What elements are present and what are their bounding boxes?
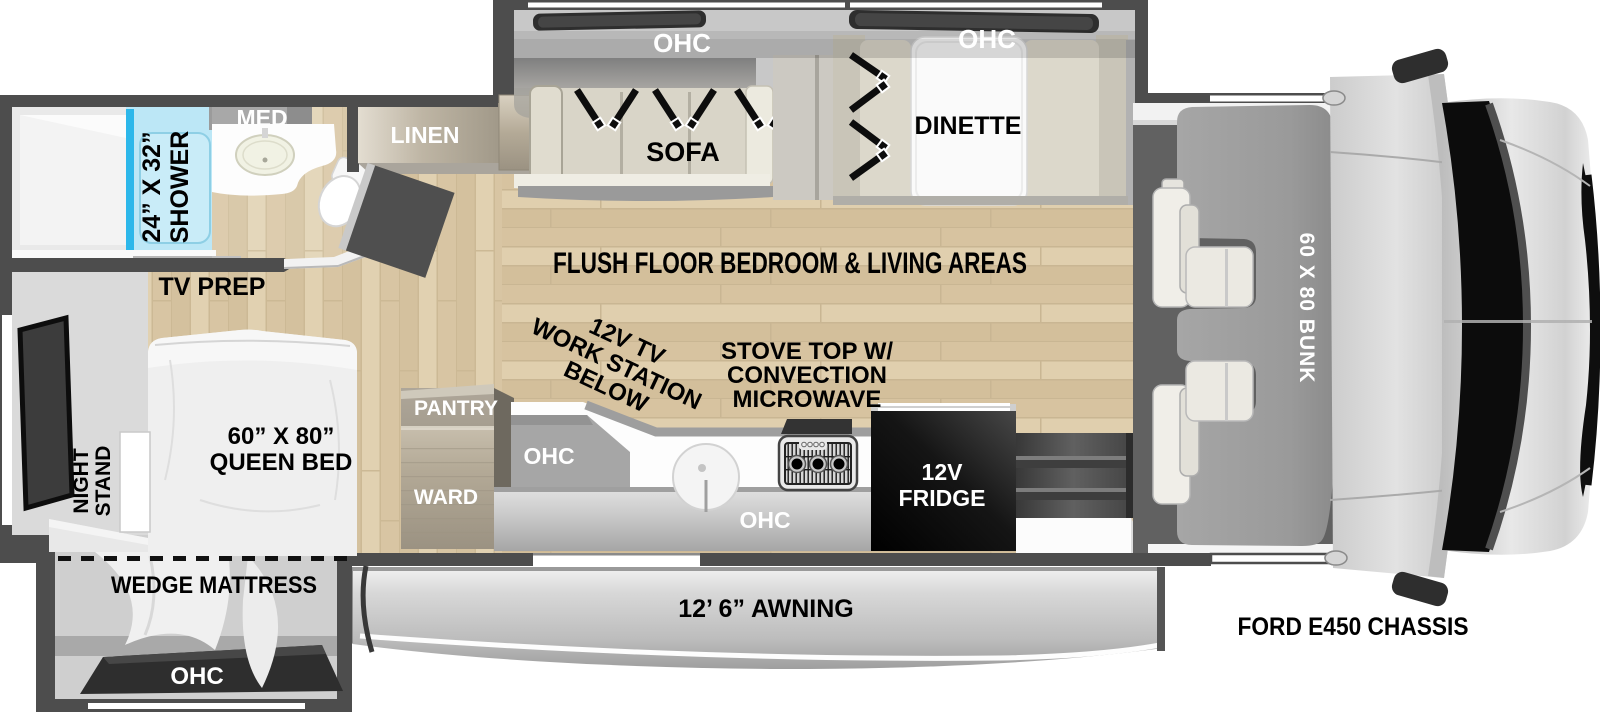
svg-text:WARD: WARD <box>414 486 478 509</box>
svg-text:SOFA: SOFA <box>646 137 720 167</box>
svg-text:CONVECTION: CONVECTION <box>727 362 887 389</box>
svg-text:QUEEN BED: QUEEN BED <box>210 449 353 476</box>
svg-text:12’ 6” AWNING: 12’ 6” AWNING <box>678 595 854 623</box>
svg-text:PANTRY: PANTRY <box>414 397 498 420</box>
svg-text:STAND: STAND <box>92 446 115 517</box>
svg-text:MICROWAVE: MICROWAVE <box>733 386 882 413</box>
svg-text:SHOWER: SHOWER <box>166 131 194 244</box>
svg-text:24” X 32”: 24” X 32” <box>138 131 166 242</box>
svg-text:STOVE TOP W/: STOVE TOP W/ <box>721 338 893 365</box>
svg-text:WEDGE MATTRESS: WEDGE MATTRESS <box>111 572 317 599</box>
svg-text:OHC: OHC <box>170 663 223 690</box>
svg-text:LINEN: LINEN <box>391 122 460 148</box>
svg-text:TV PREP: TV PREP <box>159 273 266 301</box>
svg-text:OHC: OHC <box>958 24 1016 54</box>
svg-text:FLUSH FLOOR BEDROOM & LIVING A: FLUSH FLOOR BEDROOM & LIVING AREAS <box>553 247 1027 280</box>
svg-text:12V: 12V <box>922 459 964 485</box>
svg-text:FORD E450 CHASSIS: FORD E450 CHASSIS <box>1238 613 1469 641</box>
svg-text:60” X 80”: 60” X 80” <box>228 423 335 450</box>
svg-text:OHC: OHC <box>523 443 574 469</box>
svg-text:60 X 80 BUNK: 60 X 80 BUNK <box>1295 233 1318 384</box>
svg-text:NIGHT: NIGHT <box>70 448 93 514</box>
svg-text:FRIDGE: FRIDGE <box>899 485 986 511</box>
svg-text:OHC: OHC <box>653 28 711 58</box>
svg-text:OHC: OHC <box>739 507 790 533</box>
svg-text:DINETTE: DINETTE <box>915 112 1022 140</box>
